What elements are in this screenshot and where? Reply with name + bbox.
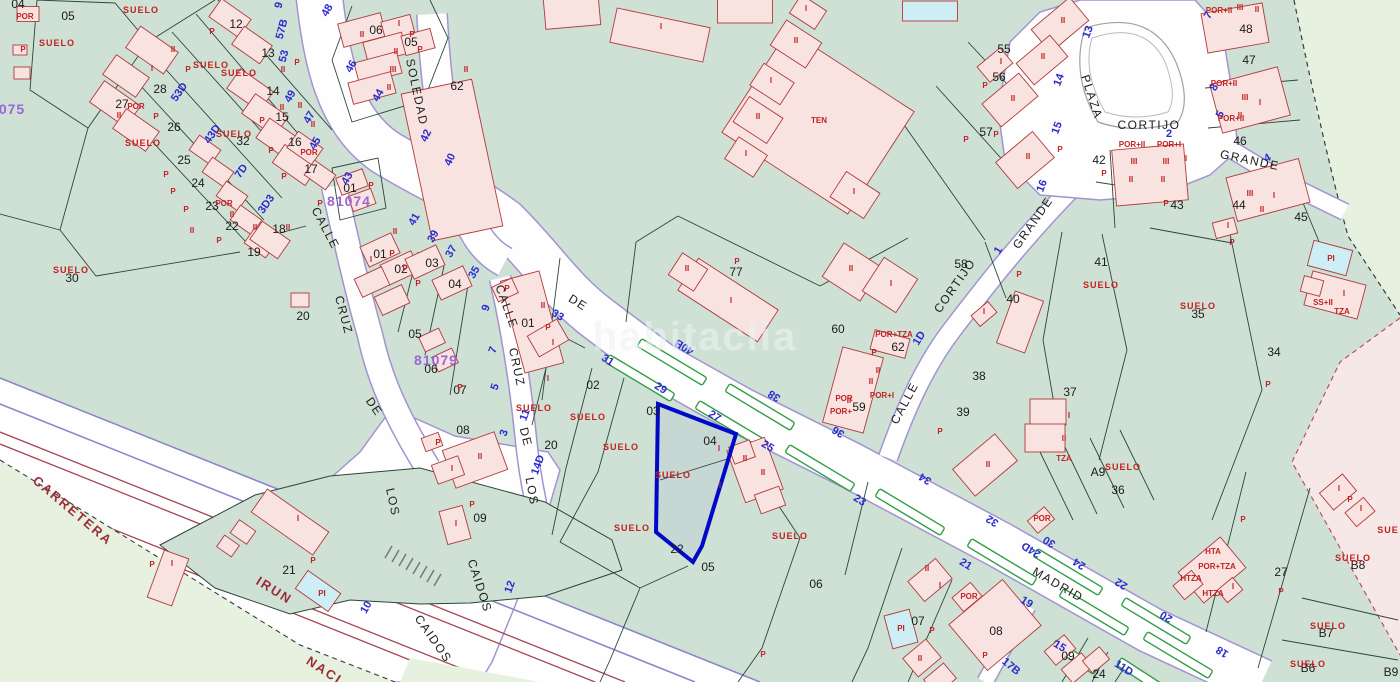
building-label: II (281, 65, 285, 74)
block-code: 81074 (327, 193, 371, 209)
building-label: P (993, 130, 999, 139)
building-label: POR (127, 102, 145, 111)
land-use-label: SUELO (221, 68, 257, 78)
building-label: P (982, 81, 988, 90)
building-label: II (394, 47, 398, 56)
building-label: P (209, 27, 215, 36)
building-label: I (1232, 582, 1234, 591)
parcel-number: 36 (1111, 483, 1125, 497)
building-label: II (1255, 5, 1259, 14)
building-label: POR+II (1211, 79, 1237, 88)
building-label: P (402, 264, 408, 273)
building-label: POR+I (1157, 140, 1181, 149)
building-label: POR (835, 394, 853, 403)
parcel-number: 45 (1294, 210, 1308, 224)
building-label: P (259, 116, 265, 125)
building (291, 293, 309, 307)
building-label: P (216, 236, 222, 245)
building-label: III (1237, 3, 1244, 12)
land-use-label: SUELO (123, 5, 159, 15)
parcel-number: 05 (61, 9, 75, 23)
building-label: P (149, 560, 155, 569)
parcel-number: 12 (229, 17, 243, 31)
building-label: P (1278, 587, 1284, 596)
building-label: PI (897, 624, 905, 633)
building-label: II (1238, 111, 1242, 120)
building-label: P (760, 650, 766, 659)
building-label: PI (1327, 254, 1335, 263)
parcel-number: 22 (670, 542, 684, 556)
building-label: I (1273, 191, 1275, 200)
parcel-number: 28 (153, 82, 167, 96)
land-use-label: SUELO (125, 138, 161, 148)
building-label: PI (318, 589, 326, 598)
building-label: II (230, 210, 234, 219)
land-use-label: SUELO (53, 265, 89, 275)
building-label: I (853, 187, 855, 196)
building-label: P (435, 438, 441, 447)
building-label: I (939, 581, 941, 590)
parcel-number: 40 (1006, 292, 1020, 306)
building-label: TZA (1056, 454, 1072, 463)
land-use-label: SUELO (772, 531, 808, 541)
building-label: II (253, 223, 257, 232)
building-label: II (1026, 152, 1030, 161)
parcel-number: 09 (473, 511, 487, 525)
land-use-label: SUELO (1180, 301, 1216, 311)
parcel-number: 04 (11, 0, 25, 11)
building (1112, 144, 1189, 206)
parcel-number: 24 (191, 176, 205, 190)
building-label: II (986, 460, 990, 469)
building (1030, 399, 1066, 425)
building-label: P (963, 135, 969, 144)
building-label: I (370, 255, 372, 264)
building-label: P (310, 556, 316, 565)
building-label: I (745, 149, 747, 158)
building-label: POR+II (1206, 6, 1232, 15)
parcel-number: 21 (282, 563, 296, 577)
building-label: POR+TZA (1198, 562, 1236, 571)
parcel-number: 01 (373, 247, 387, 261)
building-label: P (1347, 495, 1353, 504)
building-label: II (685, 264, 689, 273)
building-label: I (1259, 98, 1261, 107)
building-label: II (190, 226, 194, 235)
building (14, 67, 30, 79)
building (1025, 424, 1065, 452)
building-label: P (409, 30, 415, 39)
building-label: POR+II (1119, 140, 1145, 149)
building-label: P (982, 651, 988, 660)
land-use-label: SUELO (1290, 659, 1326, 669)
building-label: I (660, 22, 662, 31)
building-label: P (1265, 380, 1271, 389)
parcel-number: 17 (304, 162, 318, 176)
building-label: II (387, 83, 391, 92)
building-label: P (1163, 199, 1169, 208)
building-label: TZA (1334, 307, 1350, 316)
parcel-number: 48 (1239, 22, 1253, 36)
building-label: P (929, 626, 935, 635)
building-label: I (1343, 289, 1345, 298)
building-label: POR+I (870, 391, 894, 400)
building-label: P (871, 348, 877, 357)
building-label: P (417, 45, 423, 54)
parcel-number: 07 (911, 614, 925, 628)
parcel-number: 62 (450, 79, 464, 93)
parcel-number: 59 (852, 400, 866, 414)
building-label: P (294, 58, 300, 67)
building-label: I (1068, 411, 1070, 420)
land-use-label: SUELO (1335, 553, 1371, 563)
building-label: I (1185, 154, 1187, 163)
parcel-number: 42 (1092, 153, 1106, 167)
building-label: P (1101, 169, 1107, 178)
building-label: P (1016, 270, 1022, 279)
building-label: I (983, 307, 985, 316)
building-label: I (1360, 504, 1362, 513)
building-label: P (153, 112, 159, 121)
parcel-number: 56 (992, 70, 1006, 84)
parcel-number: 55 (997, 42, 1011, 56)
parcel-number: 03 (646, 404, 660, 418)
building-label: P (457, 383, 463, 392)
parcel-number: 27 (1274, 565, 1288, 579)
parcel-number: B9 (1384, 665, 1399, 679)
pool (903, 1, 958, 21)
building-label: II (286, 223, 290, 232)
building-label: POR (1033, 514, 1051, 523)
building-label: P (183, 205, 189, 214)
building-label: II (1041, 52, 1045, 61)
building-label: P (734, 257, 740, 266)
building-label: P (185, 65, 191, 74)
parcel-number: 46 (1233, 134, 1247, 148)
parcel-number: 38 (972, 369, 986, 383)
building-label: I (451, 464, 453, 473)
building-label: II (464, 65, 468, 74)
building-label: II (1061, 16, 1065, 25)
parcel-number: 22 (225, 219, 239, 233)
building-label: III (1131, 157, 1138, 166)
building-label: II (849, 264, 853, 273)
building-label: P (389, 249, 395, 258)
parcel-number: 08 (989, 624, 1003, 638)
building-label: I (805, 4, 807, 13)
land-use-label: SUELO (603, 442, 639, 452)
cadastral-map-viewer[interactable]: CALLECRUZDELOSCAIDOSCAIDOSCALLECRUZDELOS… (0, 0, 1400, 682)
parcel-number: 13 (261, 46, 275, 60)
land-use-label: SUELO (1105, 462, 1141, 472)
building-label: P (317, 199, 323, 208)
building-label: I (1338, 484, 1340, 493)
building-label: I (718, 444, 720, 453)
land-use-label: SUELO (216, 129, 252, 139)
building-label: HTZA (1202, 589, 1224, 598)
cadastral-map[interactable]: CALLECRUZDELOSCAIDOSCAIDOSCALLECRUZDELOS… (0, 0, 1400, 682)
parcel-number: 41 (1094, 255, 1108, 269)
building-label: P (368, 181, 374, 190)
land-use-label: SUELO (1310, 621, 1346, 631)
land-use-label: SUELO (614, 523, 650, 533)
building-label: I (547, 374, 549, 383)
building-label: P (1057, 145, 1063, 154)
parcel-number: 05 (408, 327, 422, 341)
building-label: P (545, 323, 551, 332)
building-label: I (890, 279, 892, 288)
building-label: II (1129, 175, 1133, 184)
watermark: habitaclia (593, 315, 798, 359)
building-label: II (743, 454, 747, 463)
building-label: II (876, 366, 880, 375)
parcel-number: 25 (177, 153, 191, 167)
building-label: II (541, 301, 545, 310)
building-label: II (280, 103, 284, 112)
street-number: 2 (1166, 128, 1172, 140)
building-label: I (1000, 57, 1002, 66)
building-label: I (770, 76, 772, 85)
building-label: II (869, 377, 873, 386)
parcel-number: 47 (1242, 53, 1256, 67)
building-label: POR+ (830, 407, 852, 416)
parcel-number: 16 (288, 135, 302, 149)
parcel-number: 26 (167, 120, 181, 134)
parcel-number: 58 (954, 257, 968, 271)
building-label: P (504, 284, 510, 293)
building-label: III (390, 65, 397, 74)
building-label: POR (16, 12, 34, 21)
land-use-label: SUELO (570, 412, 606, 422)
building-label: POR (960, 592, 978, 601)
building-label: II (298, 101, 302, 110)
building-label: II (478, 452, 482, 461)
building-label: POR (215, 199, 233, 208)
building-label: P (415, 279, 421, 288)
parcel-number: 77 (729, 265, 743, 279)
building-label: II (393, 227, 397, 236)
parcel-number: 57 (979, 125, 993, 139)
parcel-number: 04 (448, 277, 462, 291)
building-label: SS+II (1313, 298, 1333, 307)
parcel-number: 20 (296, 309, 310, 323)
building-label: II (756, 112, 760, 121)
parcel-number: 06 (809, 577, 823, 591)
parcel-number: 01 (521, 316, 535, 330)
parcel-number: 37 (1063, 385, 1077, 399)
land-use-label: SUELO (516, 403, 552, 413)
land-use-label: SUELO (655, 470, 691, 480)
building-label: II (171, 45, 175, 54)
building-label: P (268, 146, 274, 155)
parcel-number: 24 (1092, 667, 1106, 681)
building-label: I (151, 64, 153, 73)
parcel-number: 15 (275, 110, 289, 124)
parcel-number: A9 (1091, 465, 1106, 479)
building-label: I (1227, 221, 1229, 230)
land-use-label: SUELO (39, 38, 75, 48)
building-label: I (552, 338, 554, 347)
building-label: I (730, 296, 732, 305)
building-label: II (117, 111, 121, 120)
parcel-number: 02 (586, 378, 600, 392)
building-label: II (925, 564, 929, 573)
block-code: 075 (0, 101, 25, 117)
building-label: II (311, 120, 315, 129)
parcel-number: 08 (456, 423, 470, 437)
building-label: P (163, 170, 169, 179)
parcel-number: 05 (701, 560, 715, 574)
building-label: POR (300, 148, 318, 157)
building-label: III (1163, 157, 1170, 166)
building-label: HTA (1205, 547, 1221, 556)
parcel-number: 43 (1170, 198, 1184, 212)
building-label: I (398, 19, 400, 28)
building (718, 0, 773, 23)
parcel-number: 62 (891, 340, 905, 354)
parcel-number: 39 (956, 405, 970, 419)
building-label: II (794, 36, 798, 45)
building-label: P (1240, 515, 1246, 524)
parcel-number: 60 (831, 322, 845, 336)
parcel-number: 34 (1267, 345, 1281, 359)
building-label: P (469, 500, 475, 509)
building-label: II (360, 30, 364, 39)
building-label: II (1011, 94, 1015, 103)
building-label: I (455, 519, 457, 528)
building-label: HTZA (1180, 574, 1202, 583)
land-use-label: SUELO (1083, 280, 1119, 290)
building-label: II (1062, 434, 1066, 443)
building-label: POR+TZA (875, 330, 913, 339)
block-code: 81079 (414, 352, 458, 368)
building-label: I (297, 514, 299, 523)
building (543, 0, 600, 29)
building-label: II (1260, 205, 1264, 214)
building-label: P (937, 427, 943, 436)
building-label: P (170, 187, 176, 196)
parcel-number: 19 (247, 245, 261, 259)
parcel-number: 18 (272, 222, 286, 236)
building-label: P (20, 45, 26, 54)
building-label: II (918, 654, 922, 663)
parcel-number: 04 (703, 434, 717, 448)
building-label: TEN (811, 116, 827, 125)
land-use-label: SUE (1377, 525, 1399, 535)
parcel-number: 03 (425, 256, 439, 270)
parcel-number: 14 (266, 84, 280, 98)
building-label: P (1229, 238, 1235, 247)
parcel-number: 44 (1232, 198, 1246, 212)
building-label: III (1247, 189, 1254, 198)
parcel-number: 06 (369, 23, 383, 37)
building-label: II (1161, 175, 1165, 184)
parcel-number: 20 (544, 438, 558, 452)
building-label: II (761, 468, 765, 477)
building-label: P (281, 172, 287, 181)
building-label: III (1242, 93, 1249, 102)
building-label: I (171, 559, 173, 568)
building-label: I (719, 481, 721, 490)
